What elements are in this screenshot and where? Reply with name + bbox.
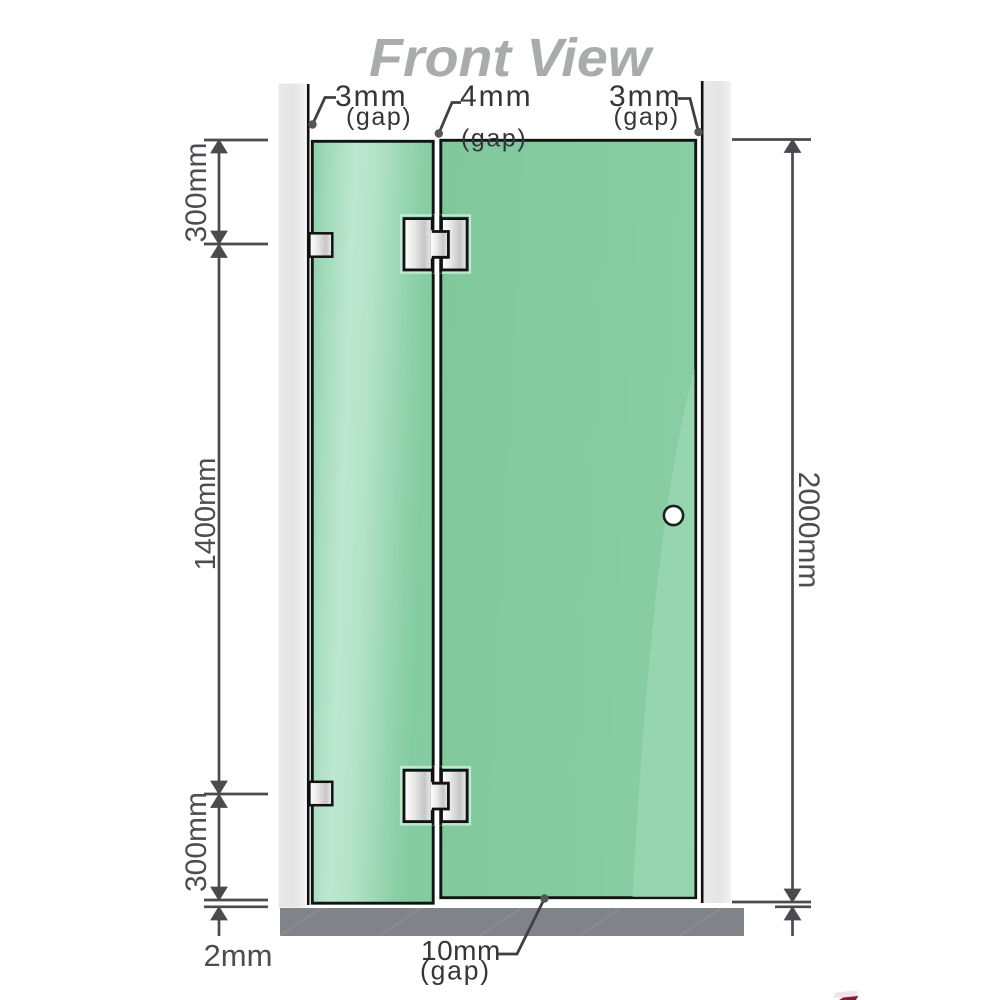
svg-text:(gap): (gap) — [461, 125, 527, 153]
svg-text:300mm: 300mm — [180, 792, 213, 892]
svg-text:(gap): (gap) — [420, 956, 491, 986]
svg-text:(gap): (gap) — [614, 103, 680, 131]
svg-text:2mm: 2mm — [204, 938, 273, 973]
svg-text:4mm: 4mm — [460, 80, 533, 113]
svg-text:2000mm: 2000mm — [792, 472, 825, 589]
svg-text:300mm: 300mm — [180, 142, 213, 242]
svg-text:1400mm: 1400mm — [190, 458, 222, 571]
svg-text:(gap): (gap) — [346, 103, 412, 131]
svg-text:Front View: Front View — [369, 28, 654, 88]
